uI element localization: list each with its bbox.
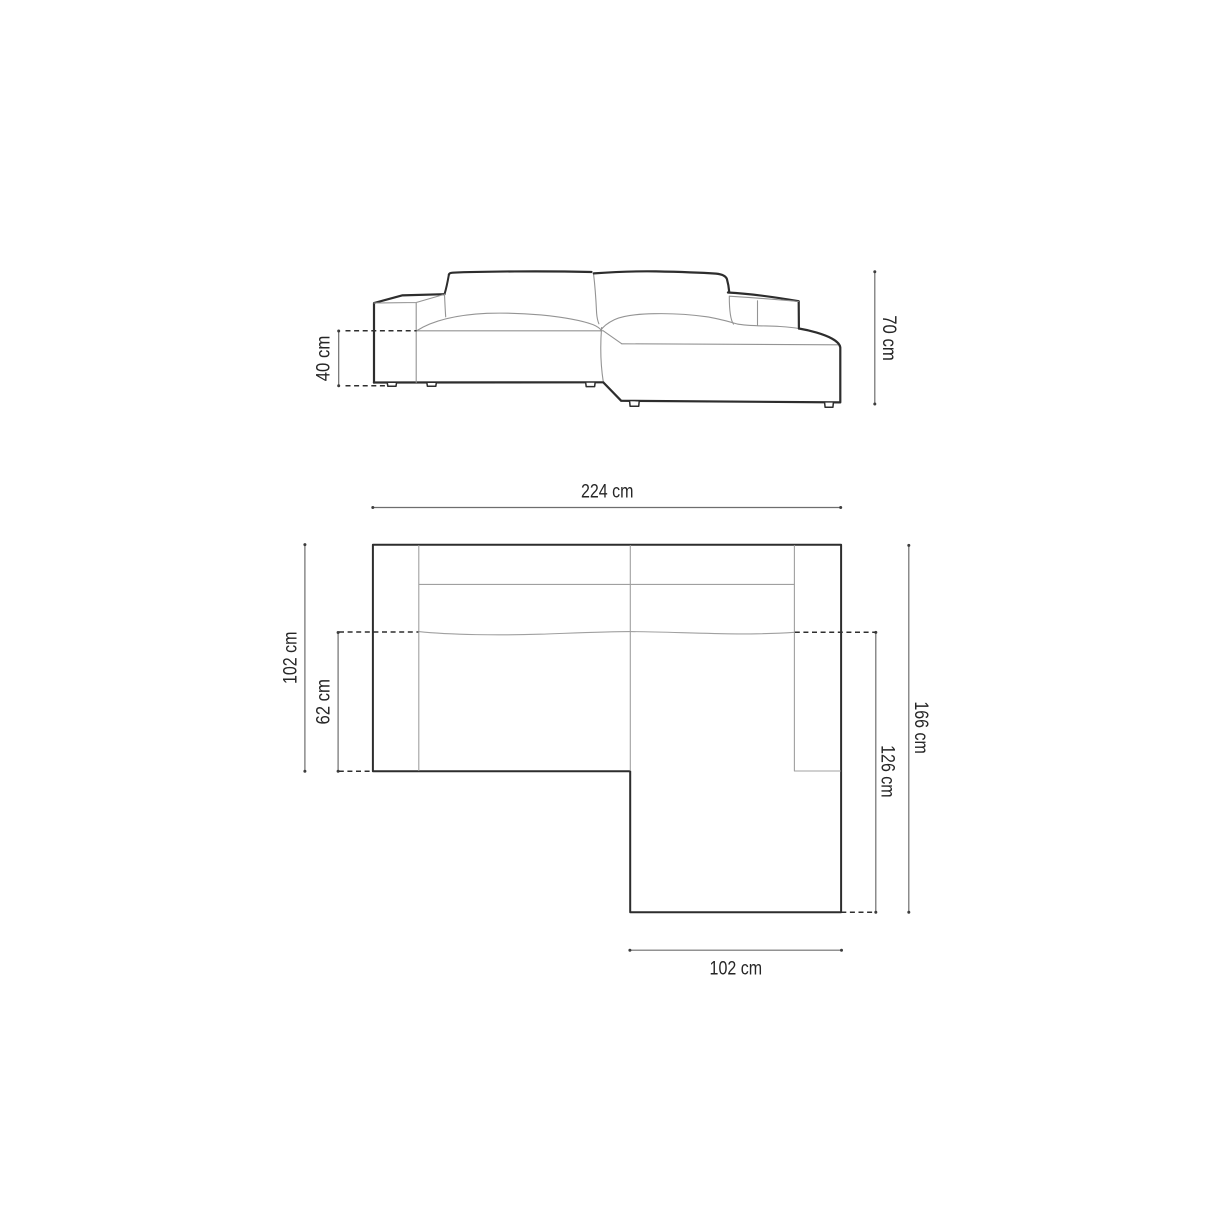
svg-text:62 cm: 62 cm [314,679,335,725]
svg-text:70 cm: 70 cm [878,315,899,361]
svg-text:102 cm: 102 cm [710,959,763,980]
svg-text:224 cm: 224 cm [581,482,634,503]
svg-text:126 cm: 126 cm [876,745,897,798]
svg-text:40 cm: 40 cm [313,336,334,382]
svg-text:102 cm: 102 cm [280,632,301,685]
svg-text:166 cm: 166 cm [910,701,931,754]
